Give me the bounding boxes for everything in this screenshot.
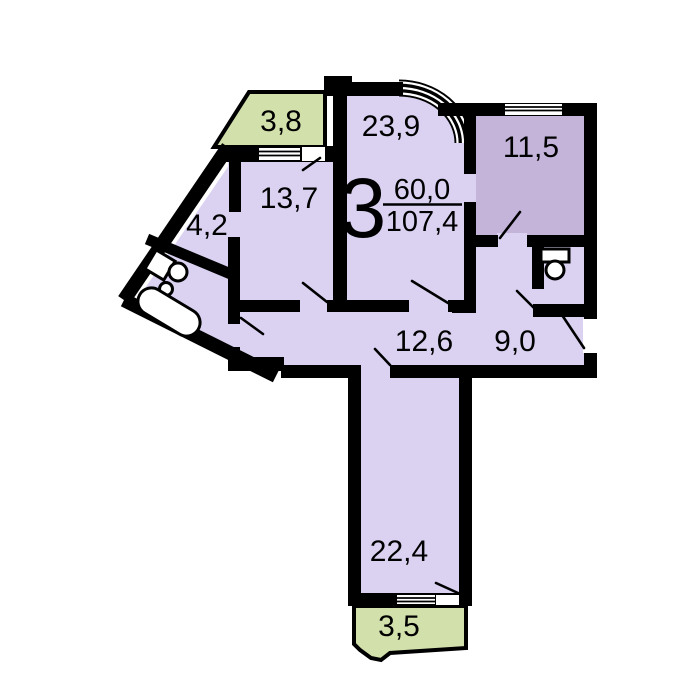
total-area: 107,4 <box>386 206 459 238</box>
wall-corridor-bottom <box>281 365 597 378</box>
wall-bedroom-top-left-bottom-b <box>327 300 337 312</box>
doorway-bedroom-bottom <box>361 364 390 379</box>
wall-bedroom-bottom-left <box>348 365 361 606</box>
window-bedroom-top-left <box>259 148 300 160</box>
area-bedroom-top-left: 13,7 <box>260 182 318 215</box>
floor-plan-page: 3,8 23,9 11,5 13,7 4,2 12,6 9,0 22,4 3,5… <box>0 0 700 700</box>
wall-bedroom-top-left-bottom <box>238 300 300 312</box>
wall-bedroom-right-bottom-a <box>464 235 498 247</box>
area-hall-small: 4,2 <box>186 209 228 242</box>
area-balcony-top: 3,8 <box>260 105 302 138</box>
area-bedroom-bottom: 22,4 <box>370 535 428 568</box>
wall-bedroom-bottom-right <box>459 365 472 606</box>
wall-living-right-upper <box>464 116 476 174</box>
window-bedroom-top-right <box>505 104 562 115</box>
window-bedroom-bottom <box>397 595 435 604</box>
wall-hall-right-upper <box>229 162 241 212</box>
wall-living-right-lower <box>464 202 476 302</box>
floor-plan: 3,8 23,9 11,5 13,7 4,2 12,6 9,0 22,4 3,5… <box>0 0 700 700</box>
balcony-door-top <box>302 147 325 161</box>
living-area-total: 60,0 <box>394 174 450 206</box>
area-balcony-bottom: 3,5 <box>378 610 420 643</box>
rooms-count: 3 <box>340 161 387 255</box>
bathroom-sink <box>169 263 187 281</box>
wall-bedroom-right-bottom-b <box>527 235 597 247</box>
area-corridor: 12,6 <box>395 325 453 358</box>
wall-wc-bottom <box>533 304 586 317</box>
wall-living-bottom-a <box>333 300 409 312</box>
area-kitchen: 9,0 <box>494 325 536 358</box>
balcony-door-bottom <box>436 595 459 605</box>
area-living: 23,9 <box>362 110 420 143</box>
area-bedroom-top-right: 11,5 <box>503 131 559 164</box>
wall-living-bottom-b <box>448 300 476 312</box>
toilet-bowl <box>546 261 564 279</box>
